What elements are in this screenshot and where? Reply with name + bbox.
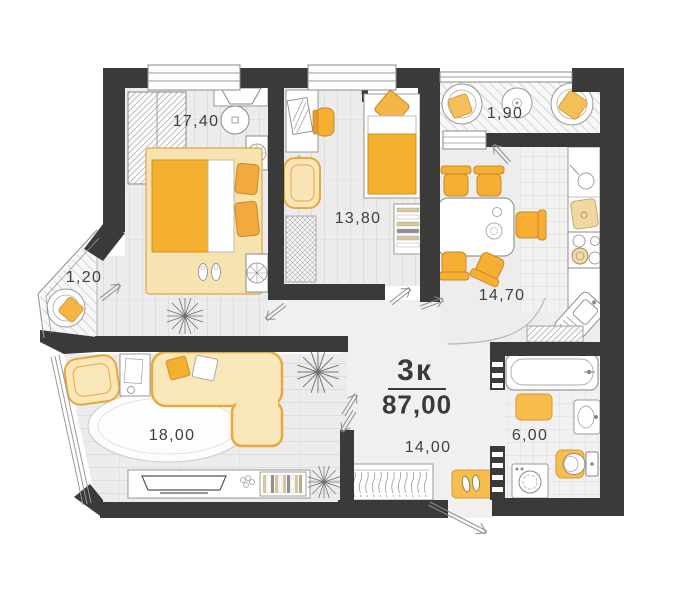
bath-mat [516, 394, 552, 420]
dining-chair-3 [516, 210, 546, 240]
balcony-left-furniture [47, 289, 85, 327]
room-area-label-loggia: 1,90 [487, 105, 523, 123]
sofa-pillow-white [192, 355, 218, 381]
room-area-label-living: 18,00 [149, 427, 196, 445]
room-area-label-bedroom-1: 17,40 [173, 113, 220, 131]
dining-chair-2 [474, 166, 504, 196]
dining-chair-4 [439, 252, 469, 280]
vanity-stool [221, 106, 249, 134]
floor-plan-drawing [0, 0, 698, 596]
dining-table [438, 198, 514, 256]
shelf-unit [394, 204, 422, 254]
side-table [120, 354, 150, 396]
hall-cabinet [527, 326, 583, 342]
sofa-pillow-orange [166, 356, 190, 380]
toilet [556, 450, 598, 478]
single-bed [362, 84, 424, 198]
round-chair [47, 289, 85, 327]
total-area-label: 87,00 [382, 390, 452, 421]
entrance-threshold [446, 496, 494, 518]
bathroom-bottom-wall [492, 498, 624, 516]
stove [568, 232, 601, 268]
loggia-bottom-wall [486, 133, 600, 147]
plant-tall-icon [297, 351, 338, 392]
tv [142, 476, 226, 490]
washbasin [574, 400, 600, 434]
bedroom2-bottom-wall [268, 284, 385, 300]
dining-chair-1 [441, 166, 471, 196]
tv-stand [128, 470, 310, 498]
room-area-label-kitchen: 14,70 [479, 287, 526, 305]
bedroom-2-window [308, 65, 396, 90]
pot [572, 248, 588, 264]
round-chair-left [442, 84, 482, 124]
right-wall [600, 68, 624, 516]
kitchen-left-wall [420, 68, 440, 302]
loggia-door-sill [443, 131, 486, 149]
bedroom1-living-wall [95, 336, 348, 352]
room-area-label-bedroom-2: 13,80 [335, 210, 382, 228]
room-area-label-hallway: 14,00 [405, 439, 452, 457]
plant-corner-icon [308, 466, 340, 498]
top-right-corner [572, 68, 600, 92]
bedroom-1-window [148, 65, 240, 90]
room-area-label-balcony-left: 1,20 [66, 269, 102, 287]
armchair [284, 158, 320, 208]
bedroom-divider-wall [268, 68, 284, 300]
plant-icon [167, 298, 203, 334]
floor-plan: 17,40 13,80 1,90 14,70 1,20 18,00 14,00 … [0, 0, 698, 596]
hall-living-wall [340, 430, 354, 510]
corridor-floor [268, 300, 420, 338]
rug [286, 216, 316, 282]
washing-machine [512, 464, 548, 498]
room-area-label-bathroom: 6,00 [512, 427, 548, 445]
bedside-cabinet-bottom [246, 254, 268, 292]
left-wall [103, 68, 125, 232]
living-bottom-wall [100, 502, 348, 518]
bathroom-top-wall [490, 342, 624, 356]
entrance-mat [452, 470, 492, 498]
bookshelf [260, 472, 306, 496]
apartment-type-label: 3к [397, 354, 433, 388]
loggia-window [440, 72, 572, 82]
bath-door-floor [490, 390, 505, 448]
bathtub [506, 354, 598, 390]
desk-chair [313, 108, 334, 136]
living-armchair [63, 354, 121, 407]
hall-wardrobe [343, 464, 433, 500]
